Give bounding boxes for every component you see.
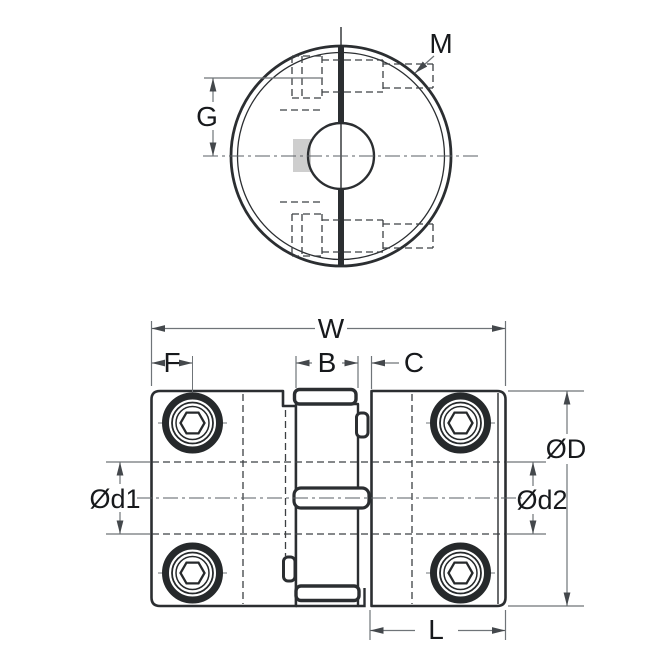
dim-b: B — [296, 347, 358, 388]
od-label: ØD — [546, 434, 587, 464]
clamp-screw-hidden-top — [280, 56, 433, 110]
w-label: W — [318, 313, 345, 344]
f-label: F — [163, 347, 180, 378]
spider-lug-bottom-left — [284, 557, 296, 581]
clamp-screw-hidden-bottom — [280, 202, 433, 256]
dim-od2: Ød2 — [507, 462, 568, 534]
od1-label: Ød1 — [89, 484, 140, 514]
m-label: M — [429, 28, 452, 59]
technical-drawing-canvas: G M — [0, 0, 670, 670]
dim-f: F — [152, 347, 193, 378]
spider-tab-top — [295, 390, 357, 405]
end-view-drawing: G M — [196, 27, 479, 266]
cap-screw-top-left — [166, 396, 220, 450]
cap-screw-top-right — [434, 396, 488, 450]
dim-l: L — [370, 610, 506, 645]
cap-screw-bottom-right — [434, 546, 488, 600]
dim-c: C — [372, 347, 425, 389]
b-label: B — [318, 347, 337, 378]
spider-lug-top-right — [357, 413, 369, 437]
hex-socket-icon — [449, 413, 473, 434]
hex-socket-icon — [181, 563, 205, 584]
hex-socket-icon — [181, 413, 205, 434]
od2-label: Ød2 — [516, 485, 567, 515]
cap-screw-bottom-left — [166, 546, 220, 600]
g-label: G — [196, 101, 218, 132]
spider-tab-bottom — [296, 586, 359, 601]
dim-m: M — [415, 28, 453, 73]
l-label: L — [428, 614, 444, 645]
c-label: C — [404, 347, 424, 378]
side-view-drawing: W F B C ØD — [89, 313, 586, 645]
hex-socket-icon — [449, 563, 473, 584]
